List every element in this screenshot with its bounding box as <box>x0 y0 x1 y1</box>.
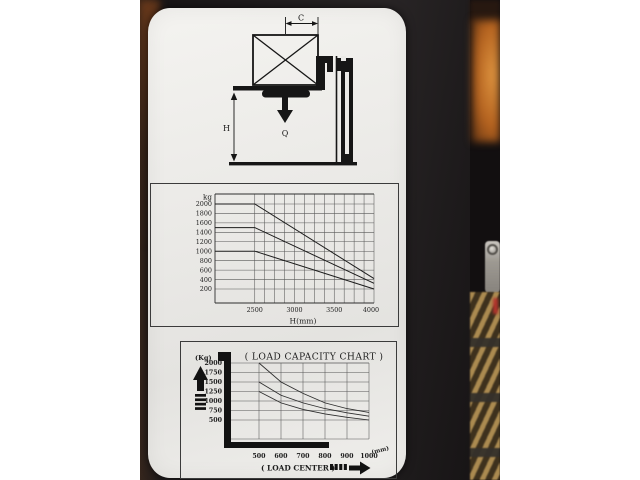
y-tick-label: 1750 <box>204 370 222 377</box>
y-tick-label: 500 <box>209 417 223 424</box>
metal-bracket <box>485 241 500 293</box>
right-arrow-dash <box>339 464 342 470</box>
y-tick-label: 1500 <box>204 379 222 386</box>
h-label: H <box>223 124 230 133</box>
y-tick-label: 1400 <box>196 229 212 237</box>
thick-x-axis <box>224 442 329 448</box>
ground-line <box>229 162 357 165</box>
up-arrow-dash <box>195 407 206 410</box>
c-arrowhead-right <box>312 21 318 26</box>
y-tick-label: 750 <box>209 408 223 415</box>
right-arrow-icon <box>349 462 371 475</box>
y-tick-label: 1000 <box>204 398 222 405</box>
x-tick-label: 900 <box>340 453 354 460</box>
y-tick-label: 1250 <box>204 389 222 396</box>
x-tick-label: 4000 <box>363 306 379 314</box>
background-red-sliver <box>493 298 498 314</box>
mast-inner-slot <box>345 72 349 154</box>
x-axis-unit-label: (mm) <box>371 445 390 456</box>
height-capacity-chart: 2000180016001400120010008006004002002500… <box>150 183 399 327</box>
height-capacity-chart-svg: 2000180016001400120010008006004002002500… <box>151 184 398 326</box>
y-tick-label: 800 <box>200 257 212 265</box>
capacity-curve-middle <box>259 382 369 416</box>
load-center-capacity-chart: 2000175015001250100075050050060070080090… <box>180 341 397 479</box>
diagram-labels: C H Q <box>223 14 304 139</box>
chart-title: ( LOAD CAPACITY CHART ) <box>245 352 384 363</box>
load-center-caption: ( LOAD CENTER ) <box>261 464 335 473</box>
screenshot-canvas: C H Q 2000180016001400120010008006004002… <box>0 0 640 480</box>
background-blur-strip <box>470 0 500 480</box>
mast-bracket-notch <box>341 56 346 61</box>
right-arrow-dash <box>335 464 338 470</box>
background-fence-grid <box>470 292 500 480</box>
x-tick-label: 3500 <box>326 306 342 314</box>
screw-head <box>487 244 498 255</box>
y-tick-label: 1600 <box>196 219 212 227</box>
y-tick-label: 400 <box>200 276 212 284</box>
diagram-shapes <box>229 17 357 165</box>
h-arrowhead-bottom <box>231 154 237 162</box>
load-capacity-decal: C H Q 2000180016001400120010008006004002… <box>148 8 406 478</box>
load-center-chart-svg: 2000175015001250100075050050060070080090… <box>181 342 396 478</box>
fork-blade <box>233 86 322 91</box>
carriage-hook-claw <box>327 62 333 72</box>
grid-lines <box>231 363 369 439</box>
h-arrowhead-top <box>231 93 237 101</box>
x-tick-label: 500 <box>252 453 266 460</box>
c-label: C <box>298 14 304 23</box>
y-tick-label: 1000 <box>196 247 212 255</box>
forklift-side-view-diagram: C H Q <box>200 10 365 170</box>
y-tick-label: 200 <box>200 285 212 293</box>
x-tick-label: 700 <box>296 453 310 460</box>
right-arrow-dash <box>344 464 347 470</box>
x-tick-label: 600 <box>274 453 288 460</box>
load-force-arrow-shaft <box>282 92 288 111</box>
y-axis-label: (Kg) <box>195 354 212 362</box>
fork-heel <box>316 60 325 90</box>
up-arrow-shaft <box>197 380 204 391</box>
grid-lines <box>215 194 374 303</box>
x-tick-label: 3000 <box>286 306 302 314</box>
x-tick-label: 800 <box>318 453 332 460</box>
q-label: Q <box>282 129 289 138</box>
y-tick-label: 1200 <box>196 238 212 246</box>
load-force-arrow-head <box>277 110 293 123</box>
x-axis-label: H(mm) <box>290 317 317 326</box>
thick-y-axis <box>224 352 231 448</box>
background-orange-blur <box>472 20 500 142</box>
x-tick-label: 2500 <box>247 306 263 314</box>
y-tick-label: 1800 <box>196 210 212 218</box>
forklift-mast-photo: C H Q 2000180016001400120010008006004002… <box>140 0 500 480</box>
y-axis-label: kg <box>203 193 212 202</box>
c-arrowhead-left <box>286 21 292 26</box>
carriage-hook-top <box>316 56 333 63</box>
tick-labels: 2000180016001400120010008006004002002500… <box>196 193 379 326</box>
y-tick-label: 600 <box>200 266 212 274</box>
capacity-curve-top <box>259 363 369 412</box>
